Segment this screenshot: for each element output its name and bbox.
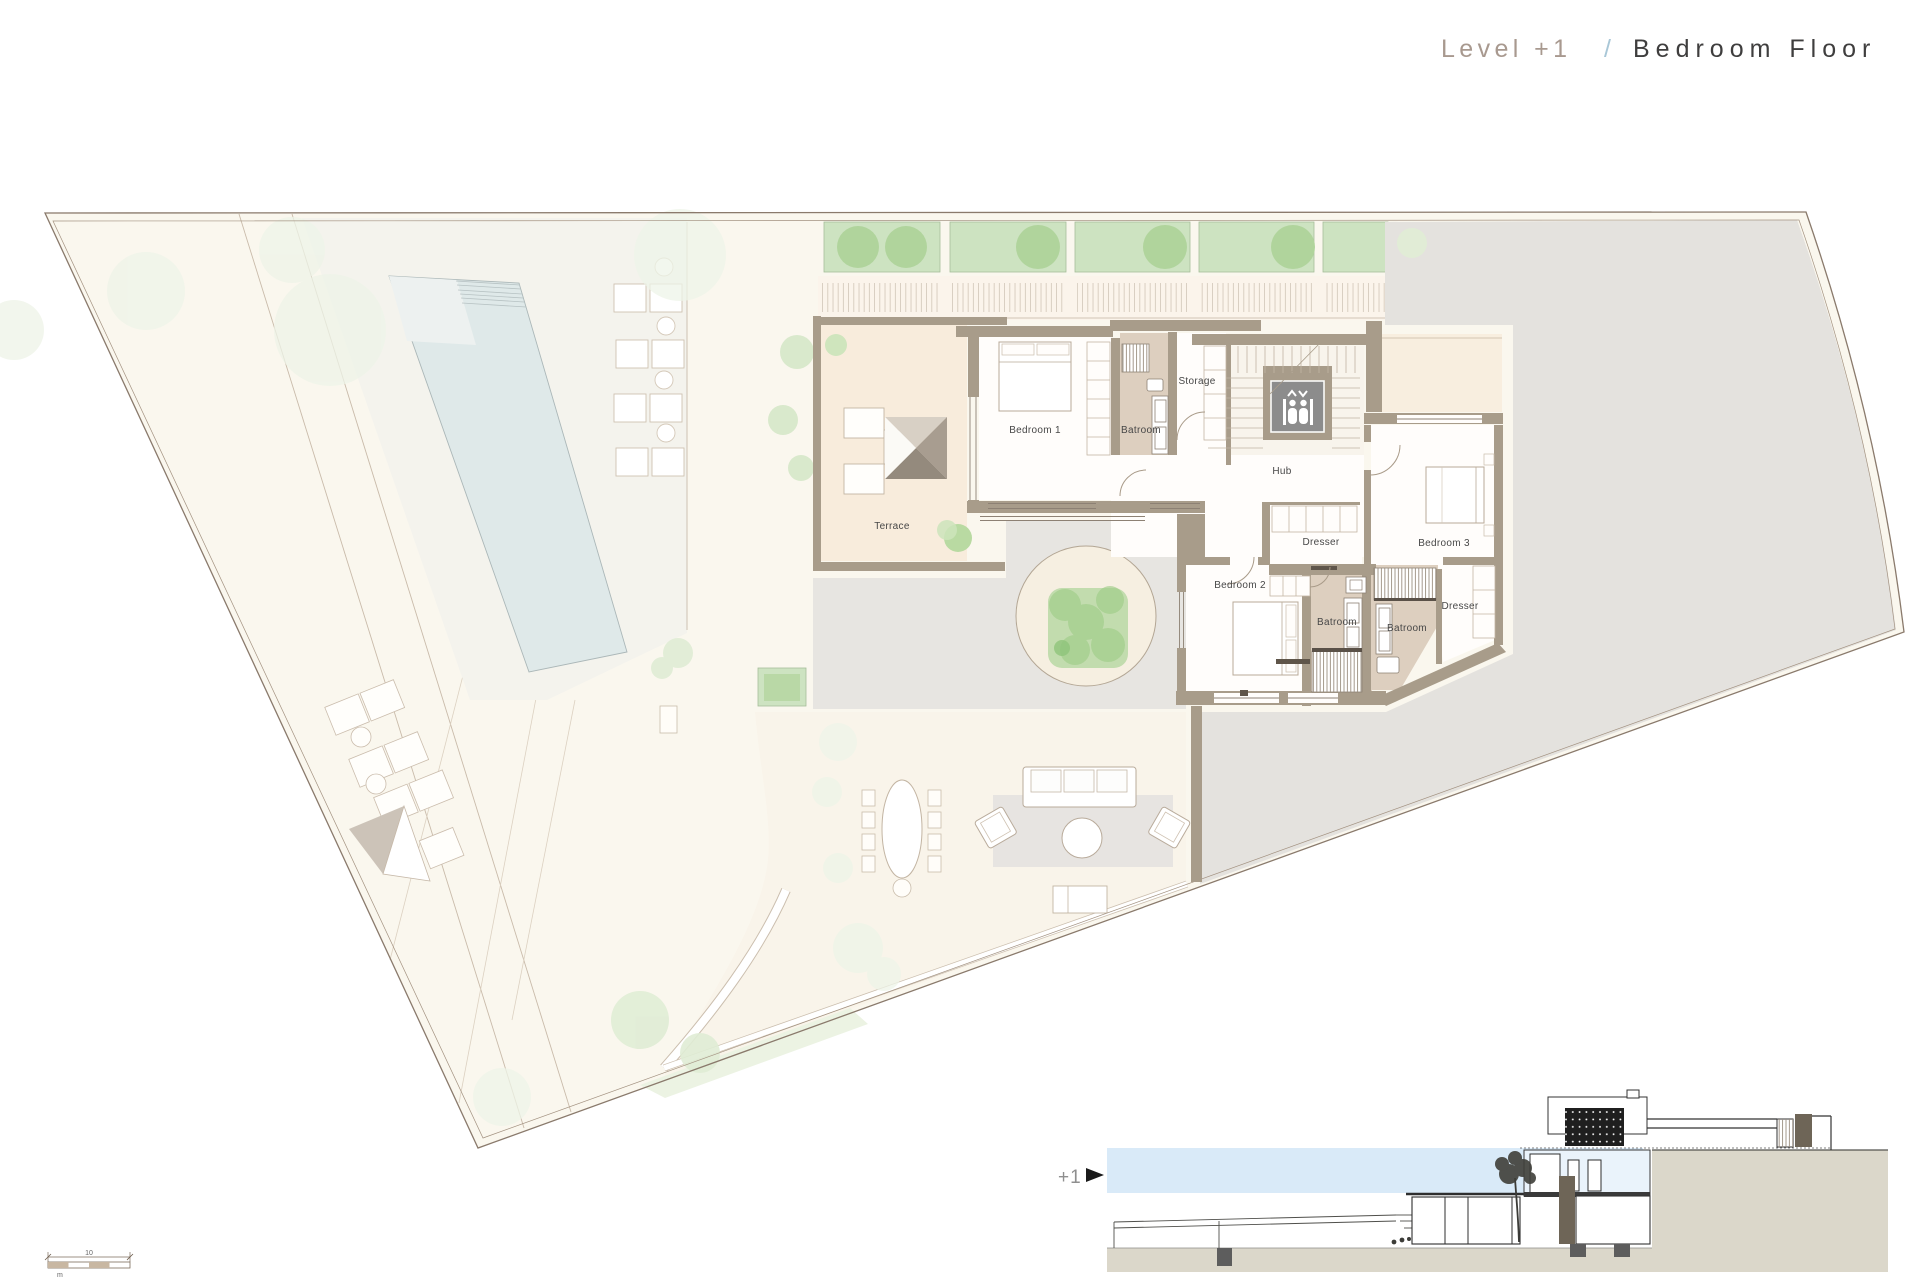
svg-text:10: 10 <box>85 1250 93 1257</box>
svg-text:Batroom: Batroom <box>1387 623 1427 634</box>
svg-text:+1: +1 <box>1058 1167 1082 1188</box>
svg-text:Terrace: Terrace <box>874 521 910 532</box>
svg-text:m: m <box>57 1272 63 1279</box>
svg-text:Bedroom 2: Bedroom 2 <box>1214 580 1266 591</box>
svg-text:Batroom: Batroom <box>1121 425 1161 436</box>
svg-text:Bedroom 3: Bedroom 3 <box>1418 538 1470 549</box>
svg-text:Hub: Hub <box>1272 466 1291 477</box>
svg-text:Storage: Storage <box>1178 376 1215 387</box>
svg-text:Bedroom Floor: Bedroom Floor <box>1633 35 1876 63</box>
svg-text:Batroom: Batroom <box>1317 617 1357 628</box>
svg-text:Bedroom 1: Bedroom 1 <box>1009 425 1061 436</box>
svg-text:/: / <box>1604 35 1611 63</box>
svg-text:Level +1: Level +1 <box>1441 35 1571 63</box>
svg-text:Dresser: Dresser <box>1441 601 1478 612</box>
svg-text:Dresser: Dresser <box>1302 537 1339 548</box>
